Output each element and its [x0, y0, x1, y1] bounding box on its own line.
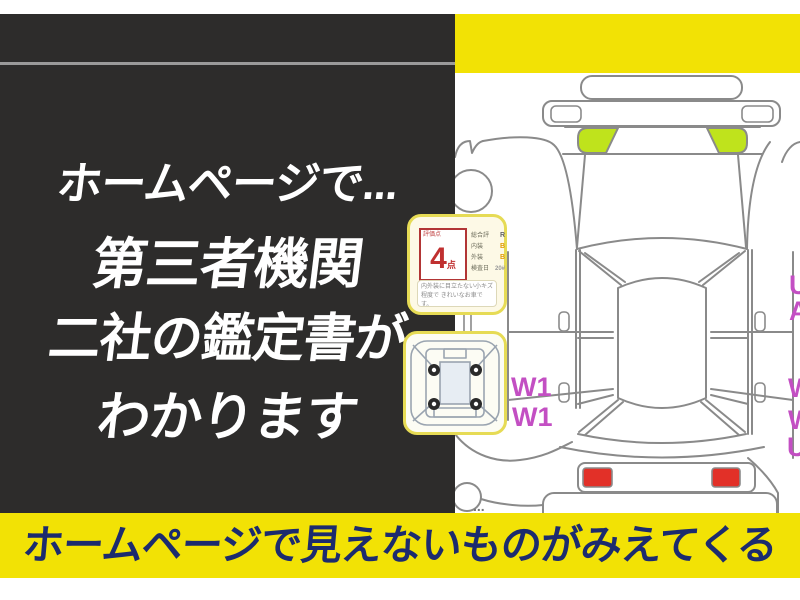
c-pillar-left [579, 400, 623, 435]
car-rear-bumper [543, 493, 777, 513]
headline-line-1: ホームページで... [0, 161, 458, 206]
headlight-right-icon [742, 106, 773, 122]
door-line-front-left [508, 332, 613, 338]
promo-image: W1 W1 U A W W U ... ホームページで... 第三者機関 二社の… [0, 0, 800, 600]
banner-text: ホームページで見えないものがみえてくる [21, 525, 778, 566]
door-handle-icon [755, 312, 765, 331]
c-pillar-right [701, 400, 745, 435]
car-front-bumper [581, 76, 742, 99]
rear-window-arc [578, 434, 746, 443]
trunk-arc [560, 447, 764, 458]
rating-card: 評価点 4点 総合評 R 内装 B 外装 B 検査日 20# 内外装に目立たない… [407, 214, 507, 315]
rating-score-label: 評価点 [423, 232, 441, 238]
side-edge-right [782, 142, 800, 162]
headline-line-2: 第三者機関 [0, 237, 458, 292]
bottom-banner: ホームページで見えないものがみえてくる [0, 513, 800, 578]
headlight-left-icon [551, 106, 581, 122]
car-front-face [543, 101, 780, 126]
door-handle-icon [755, 383, 765, 402]
rating-row: 外装 B [471, 252, 505, 263]
taillight-right-icon [712, 468, 740, 487]
door-handle-icon [559, 312, 569, 331]
underbody-rear-member [434, 408, 476, 417]
headline-line-4: わかります [0, 391, 458, 444]
a-pillar-left [579, 251, 625, 285]
inspection-mark-w-2: W [788, 405, 800, 435]
rating-row-value: B [500, 243, 505, 250]
rating-row-label: 内装 [471, 244, 483, 250]
quarter-line-right [748, 458, 778, 513]
window-line-right [748, 250, 752, 434]
underbody-front-member [444, 349, 466, 358]
green-highlight-right [707, 128, 747, 153]
inspection-mark-a: A [789, 296, 800, 326]
rating-score-value: 4点 [421, 244, 465, 274]
inspection-mark-w1-1: W1 [511, 372, 552, 402]
rating-row-label: 外装 [471, 255, 483, 261]
headline-panel: ホームページで... 第三者機関 二社の鑑定書が わかります [0, 14, 455, 513]
underbody-card [403, 331, 507, 435]
rating-row-value: B [500, 254, 505, 261]
side-mirror-bump-left [455, 141, 483, 157]
rating-row: 検査日 20# [471, 263, 505, 274]
a-pillar-right [699, 251, 745, 285]
rating-row-value: R [500, 232, 505, 239]
car-roof [618, 278, 706, 408]
rating-score-box: 評価点 4点 [419, 228, 467, 281]
door-handle-icon [559, 383, 569, 402]
sill-line-left [455, 434, 572, 461]
rating-row: 総合評 R [471, 230, 505, 241]
panel-divider-line [0, 62, 455, 65]
inspection-mark-u-2: U [787, 432, 800, 462]
rating-row: 内装 B [471, 241, 505, 252]
rating-row-label: 総合評 [471, 233, 489, 239]
ellipsis-dots: ... [473, 498, 485, 513]
taillight-left-icon [583, 468, 612, 487]
fender-line-right [747, 142, 770, 249]
sill-line-lower [481, 499, 543, 506]
green-highlight-left [578, 128, 618, 153]
underbody-floor-pan [440, 362, 470, 404]
inspection-mark-w1-2: W1 [512, 402, 553, 432]
hood-line-right [738, 155, 746, 247]
windshield-arc [577, 238, 747, 249]
rating-score-number: 4 [430, 242, 447, 275]
rating-note: 内外装に目立たない小キズ程度で きれいなお車です。 [417, 280, 497, 307]
rating-score-unit: 点 [447, 260, 456, 270]
rating-rows: 総合評 R 内装 B 外装 B 検査日 20# [471, 230, 505, 274]
inspection-mark-w-1: W [788, 373, 800, 403]
rating-row-value: 20# [495, 266, 505, 272]
underbody-diagram [406, 334, 504, 432]
headline-line-3: 二社の鑑定書が [0, 313, 458, 365]
hood-line-left [577, 155, 585, 247]
rating-row-label: 検査日 [471, 266, 489, 272]
top-yellow-bar [455, 14, 800, 73]
tag-ring-icon [455, 170, 492, 212]
window-line-left [576, 250, 580, 408]
